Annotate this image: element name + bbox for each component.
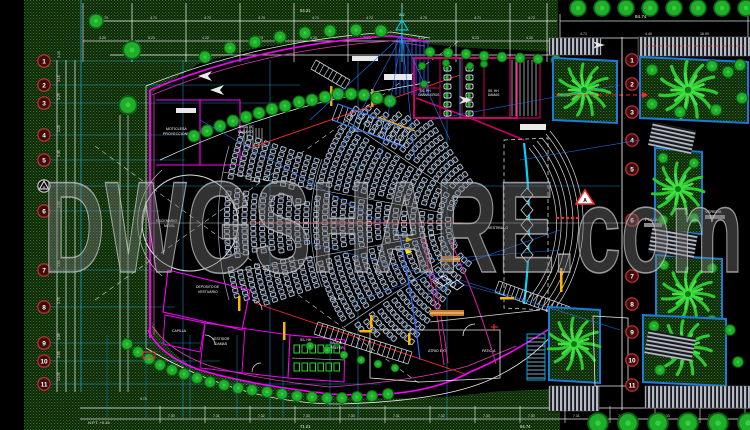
svg-text:8: 8 — [42, 304, 46, 311]
svg-text:3.25: 3.25 — [57, 93, 61, 100]
svg-text:9.75: 9.75 — [140, 397, 147, 401]
svg-text:4.71: 4.71 — [150, 16, 157, 20]
svg-text:DWGSHARE: DWGSHARE — [43, 154, 555, 300]
svg-text:PATIO A: PATIO A — [482, 349, 496, 353]
svg-text:9: 9 — [42, 340, 46, 347]
svg-text:3.15: 3.15 — [57, 75, 61, 82]
svg-text:2: 2 — [630, 81, 634, 88]
svg-text:4.40: 4.40 — [645, 32, 652, 36]
svg-text:71.21: 71.21 — [300, 424, 311, 429]
svg-text:SALIDA: SALIDA — [330, 341, 343, 345]
svg-text:7.30: 7.30 — [348, 414, 355, 418]
svg-text:4.20: 4.20 — [99, 36, 106, 40]
svg-text:10: 10 — [40, 358, 48, 365]
svg-text:7.32: 7.32 — [438, 414, 445, 418]
svg-text:4.71: 4.71 — [580, 32, 587, 36]
svg-text:3: 3 — [42, 100, 46, 107]
svg-text:3.105: 3.105 — [57, 372, 61, 381]
svg-text:4.20: 4.20 — [310, 36, 317, 40]
svg-text:7.31: 7.31 — [573, 414, 580, 418]
svg-text:3.35: 3.35 — [57, 125, 61, 132]
svg-text:DAMAS: DAMAS — [488, 93, 499, 97]
svg-text:ATRIO EXT.: ATRIO EXT. — [428, 349, 448, 353]
svg-text:4.71: 4.71 — [312, 16, 319, 20]
svg-text:1: 1 — [630, 57, 634, 64]
svg-text:ENSAYO: ENSAYO — [238, 130, 253, 134]
svg-text:8: 8 — [630, 301, 634, 308]
svg-text:7.32: 7.32 — [258, 414, 265, 418]
svg-text:7.30: 7.30 — [168, 414, 175, 418]
svg-text:2: 2 — [42, 82, 46, 89]
svg-text:10: 10 — [628, 357, 636, 364]
svg-text:7.31: 7.31 — [213, 414, 220, 418]
svg-text:N.P.T. +0.15: N.P.T. +0.15 — [88, 420, 110, 425]
svg-text:84.74: 84.74 — [520, 424, 531, 429]
svg-text:3.95: 3.95 — [57, 351, 61, 358]
svg-text:16.90: 16.90 — [700, 32, 709, 36]
svg-text:SS. HH: SS. HH — [300, 338, 312, 342]
svg-text:7.30: 7.30 — [528, 414, 535, 418]
svg-text:7.31: 7.31 — [393, 414, 400, 418]
svg-text:MOTICLESA: MOTICLESA — [166, 127, 187, 131]
svg-text:4.20: 4.20 — [526, 36, 533, 40]
svg-text:PREFER.: PREFER. — [330, 346, 345, 350]
svg-text:4: 4 — [42, 132, 46, 139]
svg-text:DAMAS: DAMAS — [215, 342, 228, 346]
svg-text:4.72: 4.72 — [528, 16, 535, 20]
svg-text:5.21: 5.21 — [148, 36, 155, 40]
svg-text:4.70: 4.70 — [420, 16, 427, 20]
svg-text:4.71: 4.71 — [474, 16, 481, 20]
svg-text:4.22: 4.22 — [202, 36, 209, 40]
svg-text:CAPILLA: CAPILLA — [172, 329, 187, 333]
svg-text:ZONA DE: ZONA DE — [238, 125, 254, 129]
svg-text:8.2: 8.2 — [399, 12, 405, 17]
svg-text:.com: .com — [553, 164, 743, 298]
svg-text:7.33: 7.33 — [303, 414, 310, 418]
svg-text:3.85: 3.85 — [57, 333, 61, 340]
svg-text:11: 11 — [629, 382, 636, 389]
svg-text:5.23: 5.23 — [472, 36, 479, 40]
svg-text:4.72: 4.72 — [366, 16, 373, 20]
svg-text:4.72: 4.72 — [204, 16, 211, 20]
svg-text:3: 3 — [630, 109, 634, 116]
svg-text:4.70: 4.70 — [258, 16, 265, 20]
svg-text:1: 1 — [42, 58, 46, 65]
svg-text:3.05: 3.05 — [57, 51, 61, 58]
svg-text:7.33: 7.33 — [483, 414, 490, 418]
svg-text:11: 11 — [41, 381, 48, 388]
svg-text:VESTIDOR: VESTIDOR — [212, 337, 230, 341]
svg-text:54.21: 54.21 — [300, 8, 311, 13]
svg-text:9: 9 — [630, 329, 634, 336]
